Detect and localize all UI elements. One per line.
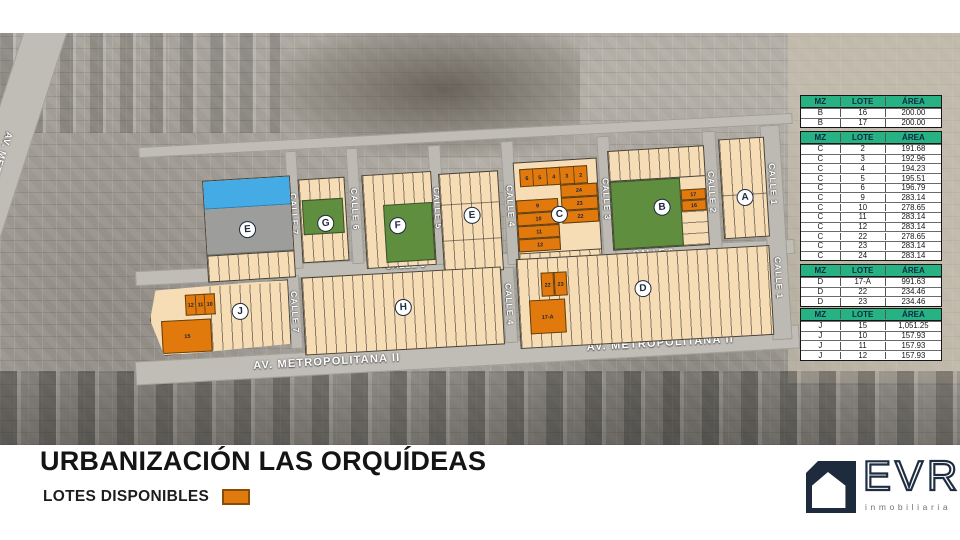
table-cell: 3	[841, 155, 886, 163]
lot-available: 4	[547, 167, 561, 186]
table-row: C6196.79	[801, 183, 941, 193]
table-row: B17200.00	[801, 118, 941, 128]
block-h: H	[301, 266, 505, 355]
table-cell: 196.79	[886, 184, 941, 192]
block-label-a: A	[736, 188, 754, 206]
lot-available: 22	[540, 272, 554, 297]
table-row: D22234.46	[801, 287, 941, 297]
street-label: CALLE 1	[773, 257, 786, 300]
table-header: MZLOTEÁREA	[801, 132, 941, 144]
table-row: C10278.65	[801, 202, 941, 212]
table-cell: 23	[841, 298, 886, 306]
header-cell: LOTE	[841, 266, 886, 275]
company-logo: EVR inmobiliaria	[806, 458, 954, 518]
table-cell: 991.63	[886, 278, 941, 286]
table-cell: 12	[841, 352, 886, 360]
table-cell: 15	[841, 322, 886, 330]
table-mz-b: MZLOTEÁREAB16200.00B17200.00	[800, 95, 942, 128]
header-cell: ÁREA	[886, 310, 941, 319]
table-row: C4194.23	[801, 163, 941, 173]
table-row: J11157.93	[801, 340, 941, 350]
block-j: 12 11 10 15 J	[148, 279, 291, 356]
block-label-h: H	[394, 299, 412, 317]
table-cell: 194.23	[886, 165, 941, 173]
table-cell: 157.93	[886, 352, 941, 360]
block-b: 17 16 B	[607, 145, 710, 251]
table-row: C22278.65	[801, 231, 941, 241]
table-cell: 11	[841, 342, 886, 350]
header-cell: MZ	[801, 310, 841, 319]
table-cell: 10	[841, 332, 886, 340]
table-cell: B	[801, 119, 841, 127]
header-cell: LOTE	[841, 97, 886, 106]
lot-available: 6	[519, 168, 534, 187]
table-cell: 11	[841, 213, 886, 221]
table-cell: 16	[841, 109, 886, 117]
table-cell: C	[801, 233, 841, 241]
table-cell: 2	[841, 145, 886, 153]
header-cell: MZ	[801, 266, 841, 275]
table-cell: C	[801, 242, 841, 250]
table-header: MZLOTEÁREA	[801, 265, 941, 277]
table-row: J10157.93	[801, 331, 941, 341]
table-cell: D	[801, 288, 841, 296]
park-area	[610, 178, 684, 250]
table-header: MZLOTEÁREA	[801, 96, 941, 108]
table-cell: 200.00	[886, 109, 941, 117]
logo-corner-shape	[806, 461, 818, 473]
table-cell: 9	[841, 194, 886, 202]
table-row: J12157.93	[801, 350, 941, 360]
park-area	[383, 202, 435, 263]
table-cell: 22	[841, 233, 886, 241]
slide: AV. METROPOLITANA I AV. METROPOLITANA I …	[0, 0, 960, 540]
street-label: AV. METROPOLITANA II	[253, 352, 401, 372]
lot-column: 17 16	[680, 176, 709, 245]
table-cell: 195.51	[886, 175, 941, 183]
street-label: CALLE 1	[767, 163, 780, 206]
table-row: C11283.14	[801, 212, 941, 222]
header-cell: MZ	[801, 97, 841, 106]
lot-available: 15	[161, 318, 213, 354]
header-cell: ÁREA	[886, 133, 941, 142]
block-d: 22 23 17-A D	[516, 245, 775, 349]
table-cell: 6	[841, 184, 886, 192]
table-cell: C	[801, 175, 841, 183]
page-title: URBANIZACIÓN LAS ORQUÍDEAS	[40, 446, 486, 477]
table-cell: D	[801, 278, 841, 286]
block-e: E	[438, 170, 504, 273]
block-g: G	[297, 177, 349, 264]
lot-line	[441, 201, 499, 206]
table-cell: 278.65	[886, 204, 941, 212]
table-cell: C	[801, 252, 841, 260]
table-cell: 283.14	[886, 213, 941, 221]
lot-available: 17-A	[529, 298, 567, 334]
table-row: D17-A991.63	[801, 277, 941, 287]
house-icon	[812, 472, 850, 508]
lot-row	[208, 250, 295, 281]
table-cell: 283.14	[886, 194, 941, 202]
street-label: CALLE 4	[503, 283, 516, 326]
lot-available: 2	[574, 165, 588, 184]
table-mz-c: MZLOTEÁREAC2191.68C3192.96C4194.23C5195.…	[800, 131, 942, 261]
table-cell: 283.14	[886, 223, 941, 231]
street-label: CALLE 7	[289, 291, 302, 334]
table-cell: J	[801, 352, 841, 360]
table-cell: C	[801, 184, 841, 192]
table-cell: 17-A	[841, 278, 886, 286]
table-mz-j: MZLOTEÁREAJ151,051.25J10157.93J11157.93J…	[800, 308, 942, 361]
table-cell: C	[801, 145, 841, 153]
logo-house-icon	[806, 461, 856, 513]
table-cell: 234.46	[886, 288, 941, 296]
table-cell: C	[801, 165, 841, 173]
street-label: CALLE 6	[349, 188, 362, 231]
table-cell: 234.46	[886, 298, 941, 306]
header-cell: ÁREA	[886, 266, 941, 275]
legend-label: LOTES DISPONIBLES	[43, 488, 209, 506]
table-cell: J	[801, 322, 841, 330]
available-lot-row: 12 11 10	[185, 293, 214, 315]
table-row: C24283.14	[801, 251, 941, 261]
table-cell: 283.14	[886, 252, 941, 260]
table-cell: 4	[841, 165, 886, 173]
table-row: C9283.14	[801, 192, 941, 202]
lot-available: 10	[205, 293, 216, 314]
lot-lines	[209, 282, 290, 350]
table-cell: 157.93	[886, 332, 941, 340]
lot-line	[443, 237, 501, 242]
table-row: J151,051.25	[801, 321, 941, 331]
satellite-map: AV. METROPOLITANA I AV. METROPOLITANA I …	[0, 33, 960, 445]
table-row: C2191.68	[801, 144, 941, 154]
header-cell: LOTE	[841, 133, 886, 142]
table-cell: 278.65	[886, 233, 941, 241]
available-lot-swatch	[222, 489, 250, 505]
table-cell: C	[801, 223, 841, 231]
table-mz-d: MZLOTEÁREAD17-A991.63D22234.46D23234.46	[800, 264, 942, 307]
table-cell: 283.14	[886, 242, 941, 250]
lot-available: 23	[553, 271, 567, 296]
table-cell: 5	[841, 175, 886, 183]
table-cell: C	[801, 213, 841, 221]
table-row: D23234.46	[801, 296, 941, 306]
block-f: F	[361, 171, 437, 269]
table-cell: J	[801, 342, 841, 350]
logo-brand: EVR	[863, 452, 960, 500]
table-row: C5195.51	[801, 173, 941, 183]
lot-lines	[682, 210, 709, 245]
block-label-e: E	[463, 206, 481, 224]
header-cell: ÁREA	[886, 97, 941, 106]
header-cell: MZ	[801, 133, 841, 142]
table-cell: C	[801, 204, 841, 212]
table-cell: D	[801, 298, 841, 306]
table-cell: 17	[841, 119, 886, 127]
table-cell: 22	[841, 288, 886, 296]
table-cell: 1,051.25	[886, 322, 941, 330]
table-cell: C	[801, 194, 841, 202]
table-row: C3192.96	[801, 154, 941, 164]
table-cell: 157.93	[886, 342, 941, 350]
street-label: CALLE 2	[706, 171, 719, 214]
table-cell: J	[801, 332, 841, 340]
table-row: C12283.14	[801, 222, 941, 232]
lot-available: 3	[560, 166, 574, 185]
lot-available: 12	[518, 237, 561, 253]
logo-subtitle: inmobiliaria	[865, 502, 951, 512]
table-row: C23283.14	[801, 241, 941, 251]
lot-available: 5	[533, 168, 547, 187]
header-cell: LOTE	[841, 310, 886, 319]
legend: LOTES DISPONIBLES	[43, 488, 250, 506]
block-a: A	[718, 137, 770, 240]
table-cell: 23	[841, 242, 886, 250]
table-cell: 200.00	[886, 119, 941, 127]
table-row: B16200.00	[801, 108, 941, 118]
table-cell: B	[801, 109, 841, 117]
block-e-services: E	[202, 175, 296, 282]
table-cell: 24	[841, 252, 886, 260]
table-cell: C	[801, 155, 841, 163]
table-cell: 12	[841, 223, 886, 231]
table-cell: 10	[841, 204, 886, 212]
table-header: MZLOTEÁREA	[801, 309, 941, 321]
table-cell: 191.68	[886, 145, 941, 153]
table-cell: 192.96	[886, 155, 941, 163]
